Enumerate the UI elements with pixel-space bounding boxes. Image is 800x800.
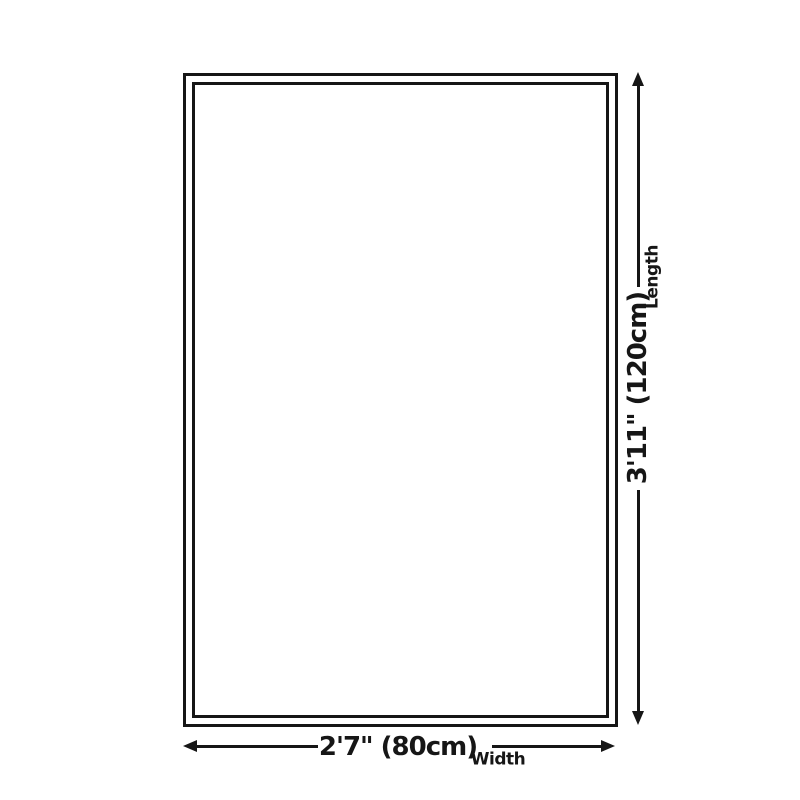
- width-dimension-value: 2'7" (80cm): [319, 734, 477, 760]
- length-dimension-line-top: [637, 86, 640, 287]
- length-dimension-line-bottom: [637, 490, 640, 711]
- size-diagram: Length 3'11" (120cm) 2'7" (80cm) Width: [0, 0, 800, 800]
- rug-outline: [183, 73, 618, 727]
- up-arrow-icon: [632, 72, 644, 86]
- down-arrow-icon: [632, 711, 644, 725]
- left-arrow-icon: [183, 740, 197, 752]
- rug-inner-border: [192, 82, 609, 718]
- right-arrow-icon: [601, 740, 615, 752]
- width-dimension-line-right: [492, 745, 601, 748]
- length-dimension-value: 3'11" (120cm): [625, 292, 651, 484]
- width-dimension-label: Width: [471, 752, 525, 769]
- width-dimension-line-left: [197, 745, 318, 748]
